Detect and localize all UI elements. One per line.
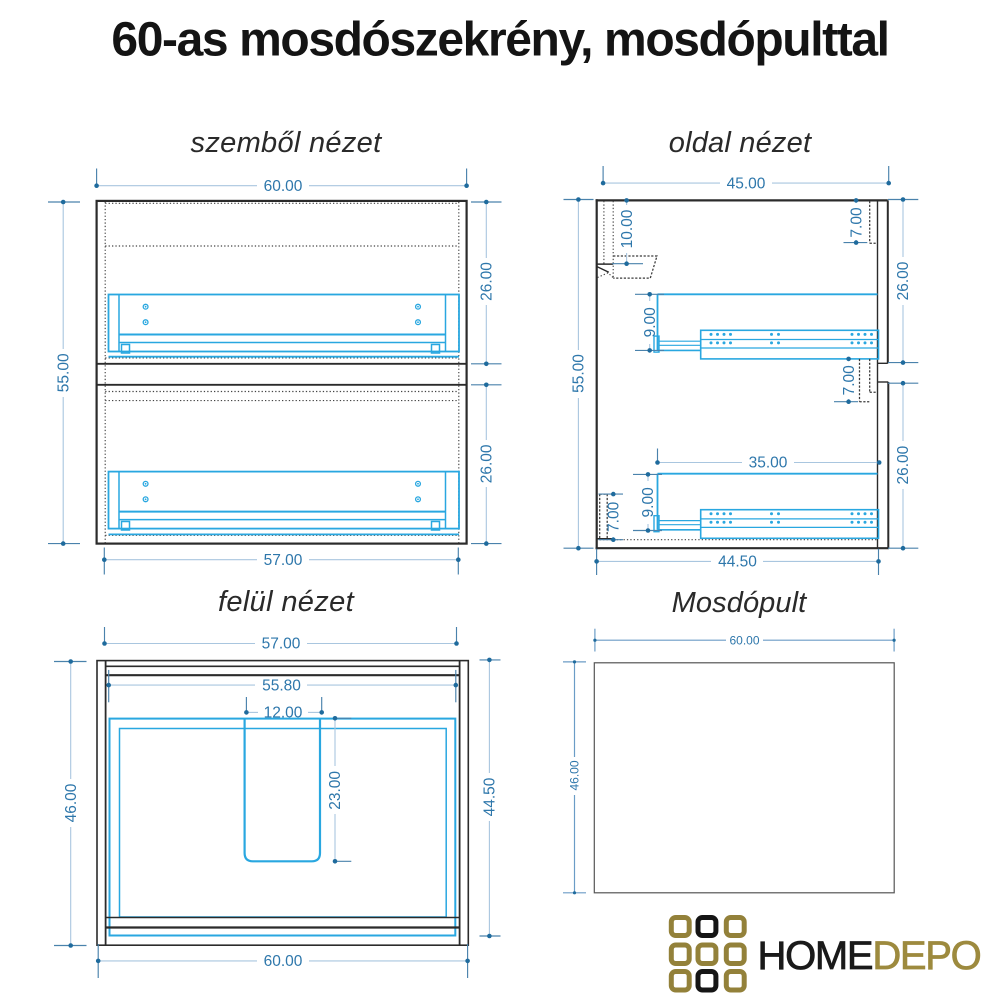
svg-text:45.00: 45.00 xyxy=(727,175,766,192)
svg-text:55.80: 55.80 xyxy=(262,677,301,694)
svg-text:46.00: 46.00 xyxy=(63,783,80,822)
svg-text:12.00: 12.00 xyxy=(264,705,303,722)
svg-text:oldal nézet: oldal nézet xyxy=(669,127,813,159)
svg-text:44.50: 44.50 xyxy=(718,554,757,571)
svg-text:44.50: 44.50 xyxy=(482,777,499,816)
svg-text:szemből nézet: szemből nézet xyxy=(191,127,384,159)
svg-text:57.00: 57.00 xyxy=(262,636,301,653)
svg-text:26.00: 26.00 xyxy=(895,261,912,300)
svg-text:felül nézet: felül nézet xyxy=(218,586,356,618)
svg-text:55.00: 55.00 xyxy=(55,353,72,392)
svg-text:9.00: 9.00 xyxy=(640,487,657,518)
svg-text:35.00: 35.00 xyxy=(749,455,788,472)
svg-text:55.00: 55.00 xyxy=(571,354,588,393)
svg-text:23.00: 23.00 xyxy=(327,771,344,810)
svg-text:46.00: 46.00 xyxy=(567,760,581,790)
svg-text:7.00: 7.00 xyxy=(848,207,865,238)
svg-text:26.00: 26.00 xyxy=(479,444,496,483)
svg-text:26.00: 26.00 xyxy=(895,445,912,484)
svg-text:HOMEDEPO: HOMEDEPO xyxy=(758,934,981,978)
svg-text:60-as mosdószekrény, mosdópult: 60-as mosdószekrény, mosdópulttal xyxy=(111,13,888,66)
svg-text:10.00: 10.00 xyxy=(619,209,636,248)
svg-text:60.00: 60.00 xyxy=(729,633,759,647)
svg-text:7.00: 7.00 xyxy=(606,501,623,532)
svg-text:60.00: 60.00 xyxy=(264,953,303,970)
svg-text:Mosdópult: Mosdópult xyxy=(672,587,809,619)
svg-text:26.00: 26.00 xyxy=(479,262,496,301)
svg-text:57.00: 57.00 xyxy=(264,552,303,569)
svg-text:9.00: 9.00 xyxy=(642,307,659,338)
svg-text:7.00: 7.00 xyxy=(841,365,858,396)
svg-text:60.00: 60.00 xyxy=(264,178,303,195)
